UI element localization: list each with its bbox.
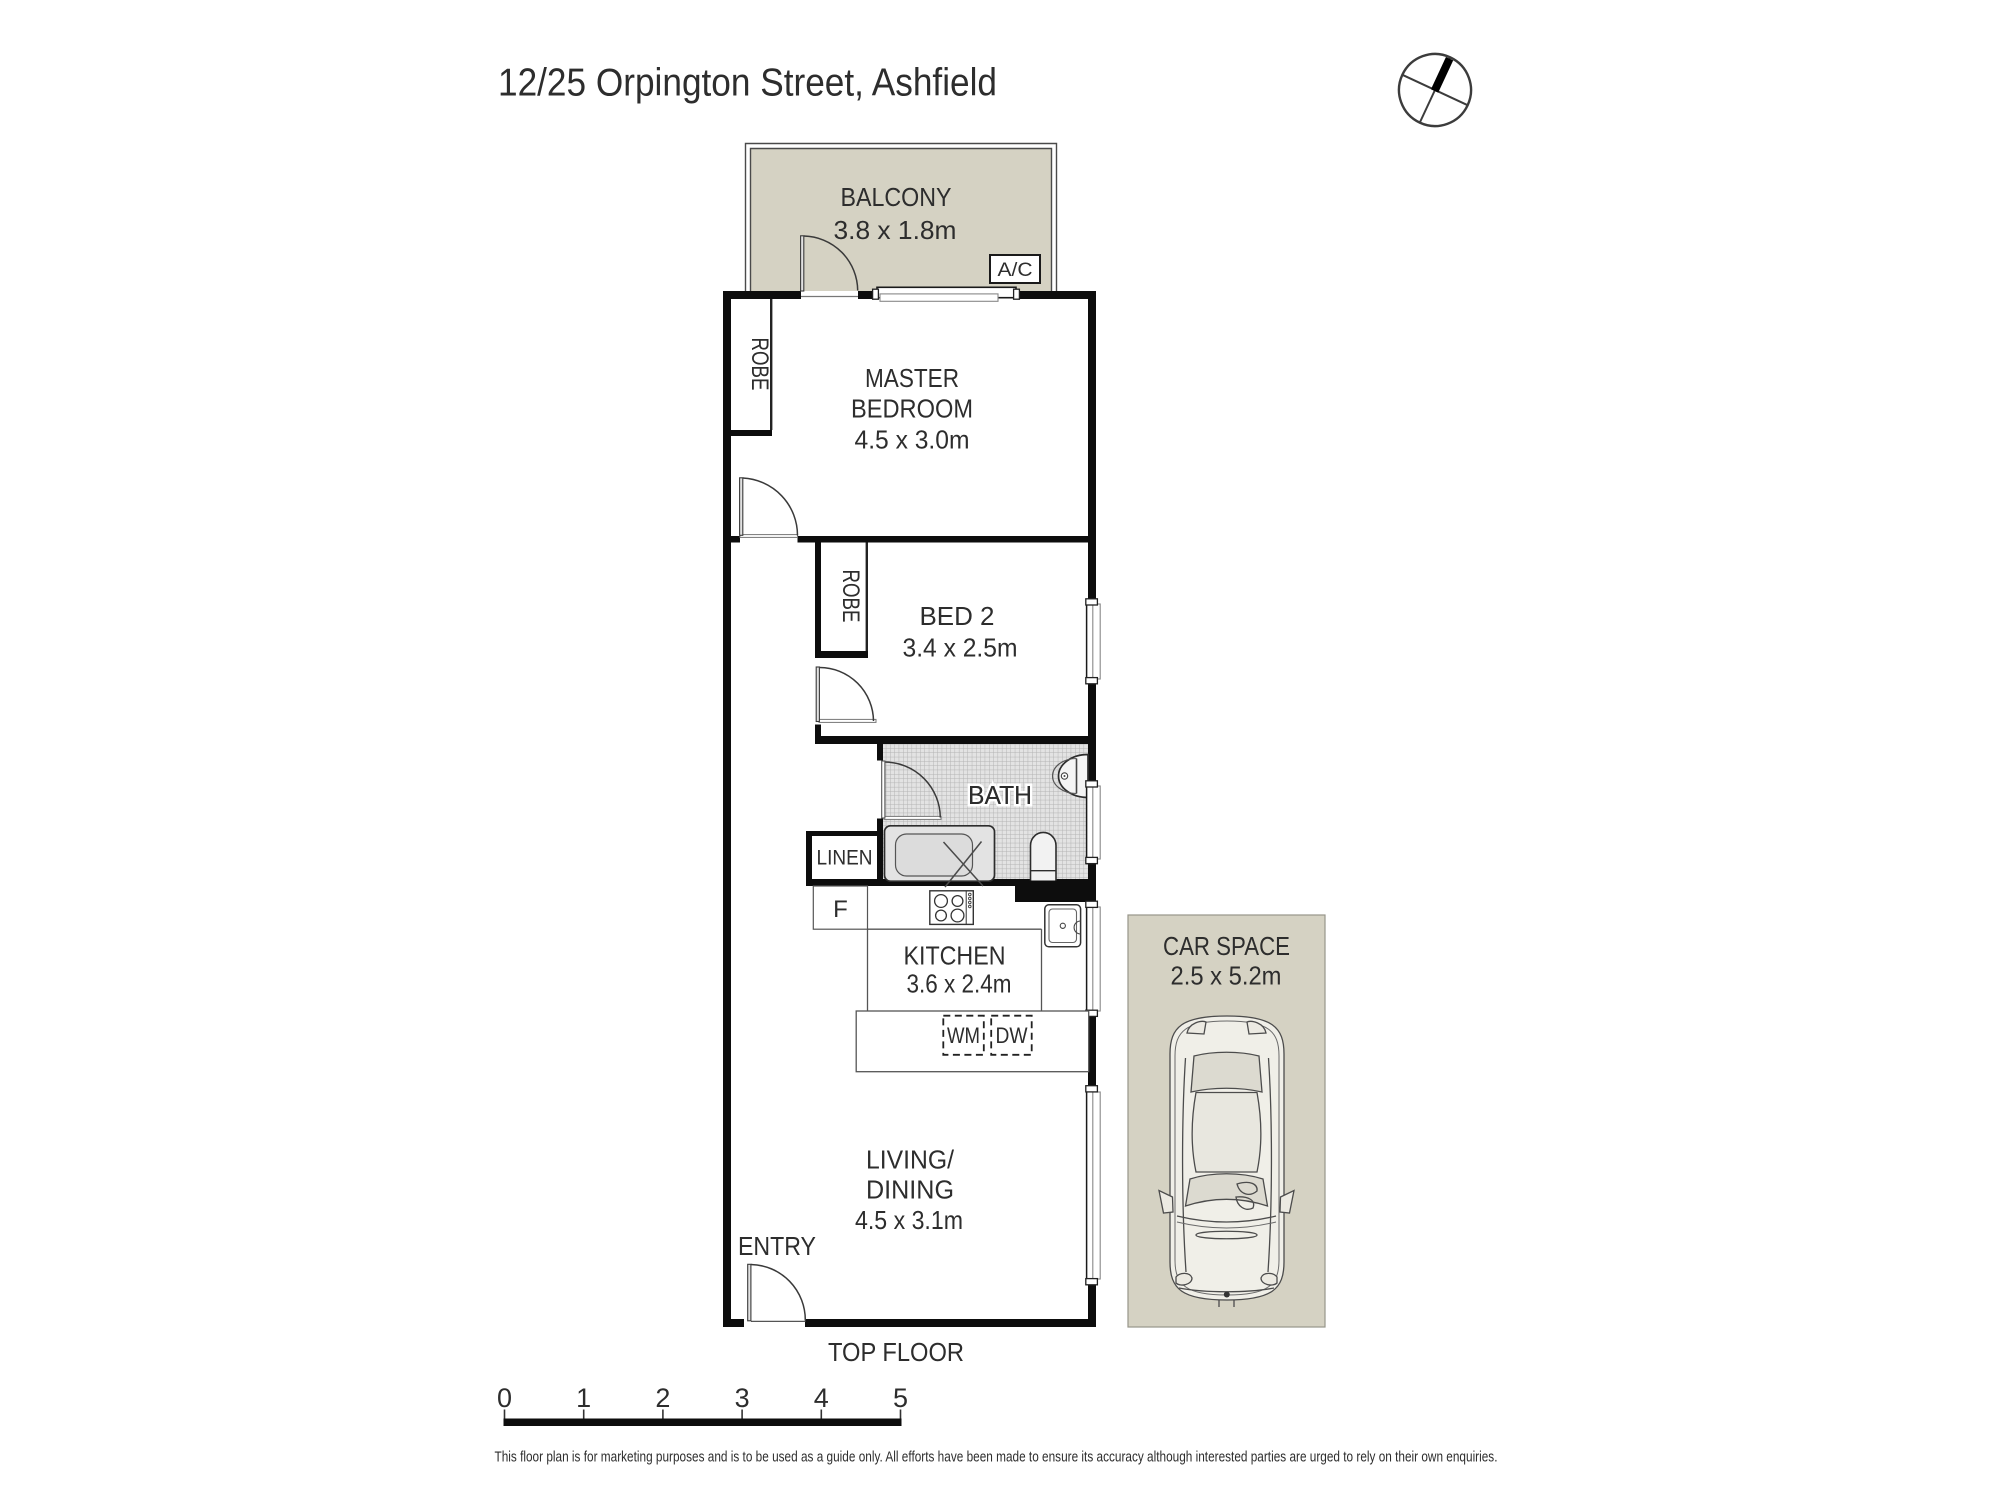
svg-text:LIVING/: LIVING/: [866, 1145, 955, 1175]
svg-text:BATH: BATH: [968, 780, 1032, 810]
svg-text:F: F: [833, 896, 848, 923]
svg-text:This floor plan is for marketi: This floor plan is for marketing purpose…: [495, 1450, 1498, 1466]
svg-text:BEDROOM: BEDROOM: [851, 394, 973, 424]
svg-text:ROBE: ROBE: [837, 570, 864, 623]
svg-text:4.5 x 3.0m: 4.5 x 3.0m: [855, 425, 970, 455]
svg-text:BALCONY: BALCONY: [841, 182, 952, 212]
svg-text:4.5 x 3.1m: 4.5 x 3.1m: [855, 1205, 963, 1235]
svg-text:12/25 Orpington Street, Ashfie: 12/25 Orpington Street, Ashfield: [498, 62, 997, 105]
svg-text:3.8 x 1.8m: 3.8 x 1.8m: [834, 215, 957, 245]
svg-text:0: 0: [497, 1383, 512, 1413]
svg-text:TOP FLOOR: TOP FLOOR: [828, 1337, 964, 1367]
svg-text:KITCHEN: KITCHEN: [904, 941, 1006, 971]
svg-text:2.5 x 5.2m: 2.5 x 5.2m: [1171, 961, 1282, 991]
svg-text:3: 3: [735, 1383, 750, 1413]
svg-text:CAR SPACE: CAR SPACE: [1163, 931, 1290, 961]
svg-text:ENTRY: ENTRY: [738, 1231, 816, 1261]
svg-text:MASTER: MASTER: [865, 363, 959, 393]
svg-text:WM: WM: [947, 1023, 980, 1048]
svg-text:BED 2: BED 2: [920, 601, 995, 631]
svg-text:3.6 x 2.4m: 3.6 x 2.4m: [907, 969, 1012, 999]
svg-text:2: 2: [655, 1383, 670, 1413]
svg-text:LINEN: LINEN: [817, 847, 873, 870]
svg-text:A/C: A/C: [998, 260, 1033, 281]
svg-text:ROBE: ROBE: [746, 338, 773, 391]
svg-text:4: 4: [814, 1383, 829, 1413]
svg-text:1: 1: [576, 1383, 591, 1413]
svg-text:3.4 x 2.5m: 3.4 x 2.5m: [903, 633, 1018, 663]
svg-text:5: 5: [893, 1383, 908, 1413]
svg-text:DINING: DINING: [866, 1175, 954, 1205]
svg-text:DW: DW: [996, 1023, 1028, 1048]
